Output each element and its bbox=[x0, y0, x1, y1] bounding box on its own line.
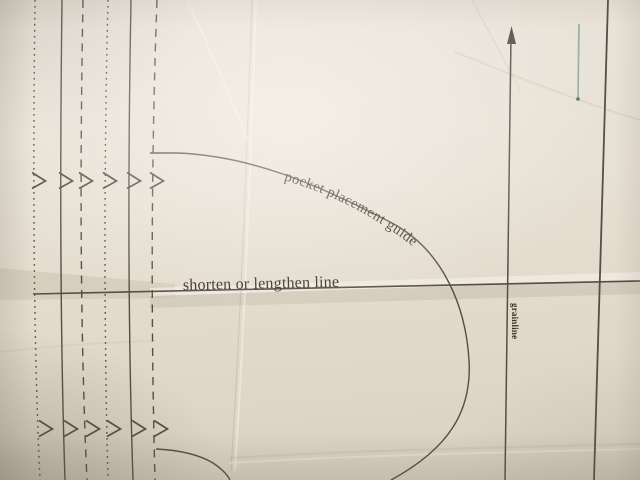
chevron-right-icon bbox=[64, 421, 78, 437]
pocket-placement-label-text: pocket placement guide bbox=[283, 169, 421, 250]
shorten-lengthen-label: shorten or lengthen line bbox=[183, 274, 340, 294]
chevron-right-icon bbox=[107, 421, 121, 437]
chevron-right-icon bbox=[154, 421, 168, 437]
sewing-pattern-photo: pocket placement guide shorten or length… bbox=[0, 0, 640, 480]
pocket-placement-curve bbox=[150, 153, 469, 480]
pattern-line-dotted-1 bbox=[34, 0, 40, 480]
pocket-label-guide-path bbox=[280, 179, 444, 272]
chevron-right-icon bbox=[39, 421, 53, 437]
vertical-crease-highlight bbox=[235, 0, 256, 470]
pattern-line-solid-2 bbox=[61, 0, 65, 480]
left-wrinkle bbox=[0, 341, 155, 352]
bottom-wrinkle-highlight bbox=[230, 449, 640, 463]
teal-line-tip bbox=[576, 97, 580, 101]
grainline-label: grainline bbox=[510, 303, 520, 339]
pattern-markings: pocket placement guide shorten or length… bbox=[0, 0, 640, 480]
pocket-corner-curve bbox=[156, 449, 230, 480]
right-seam-line bbox=[594, 0, 608, 480]
pattern-line-solid-5 bbox=[129, 0, 133, 480]
fold-crease-band-left bbox=[0, 268, 175, 300]
grainline-arrow-icon bbox=[507, 26, 516, 44]
pocket-placement-label: pocket placement guide bbox=[283, 169, 421, 250]
diagonal-crease-topright bbox=[455, 52, 640, 120]
pattern-line-dashed-3 bbox=[81, 0, 87, 480]
diagonal-crease-top bbox=[472, 0, 520, 90]
vertical-crease-shadow bbox=[231, 0, 252, 470]
chevron-right-icon bbox=[86, 421, 100, 437]
teal-marking-line bbox=[578, 24, 579, 98]
pattern-line-dotted-4 bbox=[105, 0, 108, 480]
grainline-line bbox=[505, 36, 511, 480]
pattern-line-dashed-6 bbox=[152, 0, 157, 480]
diagonal-crease-topleft bbox=[188, 2, 252, 150]
chevron-right-icon bbox=[132, 421, 146, 437]
vertical-pattern-lines bbox=[32, 0, 168, 480]
